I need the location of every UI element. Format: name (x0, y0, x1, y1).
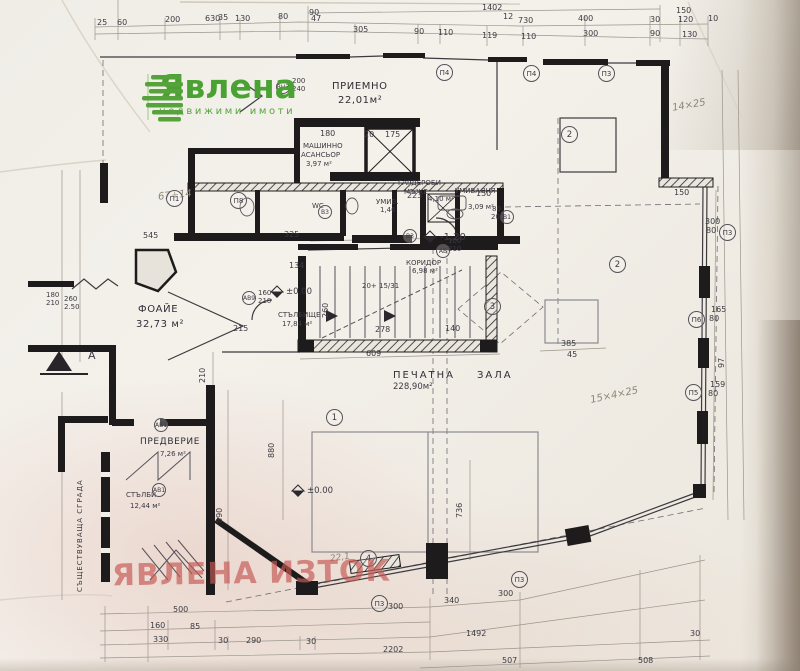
dim-label: 300 (583, 30, 598, 38)
room-number-marker: 1 (326, 409, 343, 426)
dim-label: 150 (676, 7, 691, 15)
dim-label: 180 (320, 130, 335, 138)
dim-label: 260 (64, 296, 77, 303)
dim-label: 47 (311, 15, 321, 23)
dim-label: 35 (218, 14, 228, 22)
dim-label: 890 (216, 508, 224, 523)
dim-label: 119 (482, 32, 497, 40)
door-marker: В3 (403, 229, 417, 243)
room-umiv-name: УМИВ. (376, 199, 399, 206)
dim-label: 80 (278, 13, 288, 21)
dim-label: 609 (366, 350, 381, 358)
dim-label: 130 (682, 31, 697, 39)
level-zero-label: ±0.00 (286, 288, 312, 297)
door-marker: АВ9 (242, 291, 256, 305)
dim-label: 215 (233, 325, 248, 333)
room-foyer-name: ФОАЙЕ (138, 305, 178, 315)
room-vestibule-area: 7,26 м² (160, 451, 186, 458)
section-marker-underline (40, 373, 88, 375)
room-number-marker: 2 (609, 256, 626, 273)
yavlena-logo-icon (137, 72, 189, 126)
dim-label: 730 (518, 17, 533, 25)
level-zero-label2: ±0.00 (307, 487, 333, 496)
dim-label: 500 (173, 606, 188, 614)
dim-label: 210 (258, 298, 271, 305)
dim-label: 130 (235, 15, 250, 23)
dim-label: 30 (690, 630, 700, 638)
dim-label: 10 (708, 15, 718, 23)
dim-label: 20 (364, 131, 374, 139)
dim-label: 2202 (383, 646, 403, 654)
room-printhall-name: ПЕЧАТНА (393, 371, 455, 381)
dim-label: 175 (385, 131, 400, 139)
dim-label: 305 (353, 26, 368, 34)
dim-label: 80 (709, 315, 719, 323)
dim-label: 200 (165, 16, 180, 24)
dim-label: 120 (678, 16, 693, 24)
axis-marker: П3 (371, 595, 388, 612)
dim-label: 1402 (482, 4, 502, 12)
dim-label: 160 (150, 622, 165, 630)
room-printhall-name2: ЗАЛА (477, 371, 513, 381)
room-stairs-area: 12,44 м² (130, 503, 160, 510)
room-corridor-name: КОРИДОР (406, 260, 441, 267)
room-foyer-area: 32,73 м² (136, 320, 184, 330)
door-marker: АВ1 (154, 418, 168, 432)
axis-marker: П3 (511, 571, 528, 588)
room-wardrobe-area: 4,10 м² (428, 196, 454, 203)
section-marker-icon (46, 351, 72, 371)
dim-label: 385 (561, 340, 576, 348)
room-wardrobe-name: ГАРДЕРОБИ (398, 180, 441, 187)
room-number-marker: 2 (561, 126, 578, 143)
dim-label: 2.50 (64, 304, 80, 311)
room-reception-name: ПРИЕМНО (332, 82, 388, 92)
dim-label: 210 (199, 368, 207, 383)
room-existing-name: СЪЩЕСТВУВАЩА СГРАДА (77, 479, 84, 592)
dim-label: 30 (306, 638, 316, 646)
dim-label: 90 (650, 30, 660, 38)
dim-label: 134 (289, 262, 304, 270)
dim-label: 508 (638, 657, 653, 665)
room-reception-area: 22,01м² (338, 96, 382, 106)
yavlena-logo: Явлена недвижими имоти (137, 70, 297, 120)
door-marker: АВ1 (152, 483, 166, 497)
dim-label: 45 (567, 351, 577, 359)
dim-label: 340 (444, 597, 459, 605)
dim-label: 300 (388, 603, 403, 611)
dim-label: 200 (491, 214, 504, 221)
dim-label: 150 (674, 189, 689, 197)
dim-label: 330 (153, 636, 168, 644)
dim-label: 210 (448, 246, 461, 253)
dim-label: 260 (322, 303, 330, 318)
dim-label: 325 (284, 231, 299, 239)
room-washroom-area: 3,09 м² (468, 204, 494, 211)
axis-marker: П1 (166, 190, 183, 207)
room-machine-name: МАШИННО (303, 143, 343, 150)
dim-label: 545 (143, 232, 158, 240)
dim-label: 80 (492, 206, 501, 213)
room-machine-name2: АСАНСЬОР (301, 152, 340, 159)
room-corridor-area: 6,98 м² (412, 268, 438, 275)
stair-count-note: 20+ 15/31 (362, 283, 399, 290)
dim-label: 100 (448, 238, 461, 245)
dim-label: 150 (476, 190, 491, 198)
axis-marker: П3 (719, 224, 736, 241)
dim-label: 278 (375, 326, 390, 334)
floor-plan-photo: Явлена недвижими имоти ЯВЛЕНА ИЗТОК А ПР… (0, 0, 800, 671)
room-printhall-area: 228,90м² (393, 383, 433, 392)
room-umiv-area: 1,46 (380, 207, 396, 214)
dim-label: 223 (407, 192, 422, 200)
room-vestibule-name: ПРЕДВЕРИЕ (140, 438, 200, 447)
room-stairwell-name: СТЪЛБИЩЕ (278, 312, 320, 319)
dim-label: 80 (708, 390, 718, 398)
door-marker: В3 (318, 205, 332, 219)
dim-label: 110 (438, 29, 453, 37)
room-machine-area: 3,97 м² (306, 161, 332, 168)
dim-label: 60 (117, 19, 127, 27)
dim-label: 30 (650, 16, 660, 24)
axis-marker: П8 (230, 192, 247, 209)
dim-label: 400 (578, 15, 593, 23)
dim-label: 180 (46, 292, 59, 299)
dim-label: 736 (456, 503, 464, 518)
dim-label: 507 (502, 657, 517, 665)
dim-label: 165 (711, 306, 726, 314)
dim-label: 160 (258, 290, 271, 297)
dim-label: 90 (414, 28, 424, 36)
room-stairwell-area: 17,84 м² (282, 321, 312, 328)
dim-label: 110 (521, 33, 536, 41)
dim-label: 25 (97, 19, 107, 27)
dim-label: 880 (268, 443, 276, 458)
watermark-text: ЯВЛЕНА ИЗТОК (112, 554, 392, 594)
dim-label: 300 (498, 590, 513, 598)
dim-label: 12 (503, 13, 513, 21)
dim-label: 30 (218, 637, 228, 645)
section-marker-label: А (88, 350, 96, 361)
dim-label: 97 (718, 358, 726, 368)
axis-marker: П3 (598, 65, 615, 82)
dim-label: 300 (705, 218, 720, 226)
dim-label: 210 (46, 300, 59, 307)
dim-label: 159 (710, 381, 725, 389)
dim-label: 85 (190, 623, 200, 631)
axis-marker: П6 (688, 311, 705, 328)
axis-marker: П4 (523, 65, 540, 82)
dim-label: 1492 (466, 630, 486, 638)
axis-marker: П5 (685, 384, 702, 401)
axis-marker: П4 (436, 64, 453, 81)
dim-label: 290 (246, 637, 261, 645)
room-number-marker: 3 (484, 298, 501, 315)
dim-label: 140 (445, 325, 460, 333)
dim-label: 80 (706, 227, 716, 235)
